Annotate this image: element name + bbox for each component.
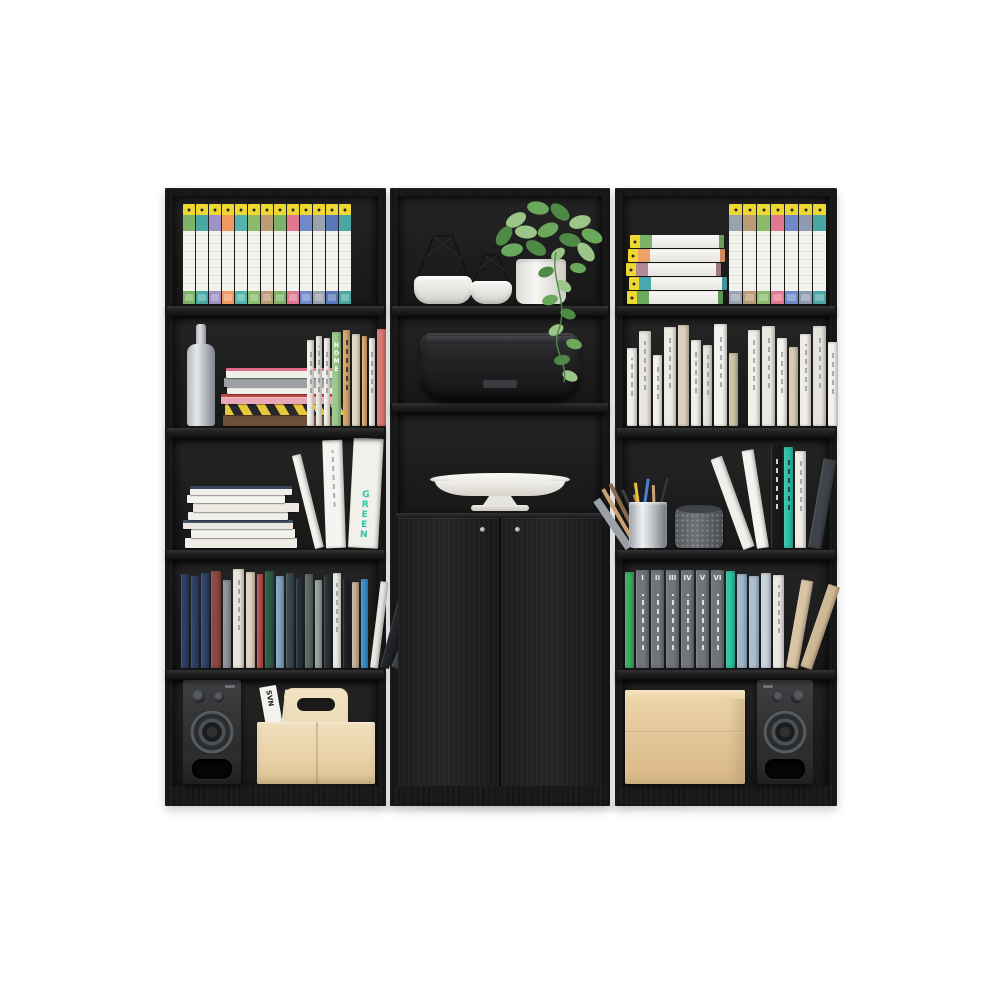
bowl-body [435,481,565,496]
book-spine [691,340,701,426]
spine-text-marks [753,340,755,390]
ring-binder [287,204,299,304]
shelf-board [392,306,608,316]
book-spine [286,573,294,668]
left-shelf-2: HOME [173,316,378,428]
book-stack [185,486,297,548]
shelf-board [167,428,384,438]
binder-color-band [287,215,299,231]
spine-text-marks [657,365,659,399]
book-spine [377,329,386,426]
ring-binder [813,204,826,304]
spine-text-marks [695,350,697,393]
binder-color-band [248,215,260,231]
binder-white-body [729,231,742,291]
book-spine [305,574,313,668]
cabinet [398,513,602,786]
spine-text-marks [800,461,802,511]
book-spine [246,572,255,668]
binder-bottom-label [743,291,756,304]
binder-color-band [261,215,273,231]
binder-bottom-label [287,291,299,304]
horizontal-book-stack [627,234,725,304]
shelf-board [392,403,608,413]
right-shelf-2 [623,316,829,428]
volume-numeral: V [696,574,709,582]
spine-text-marks [781,348,783,393]
stereo-speaker [183,680,241,784]
book-spine [678,325,689,426]
woofer [763,710,807,754]
binder-bottom-label [785,291,798,304]
horizontal-book [629,277,727,290]
binder-spine-top [729,204,742,215]
binder-white-body [183,231,195,291]
horizontal-book [630,235,724,248]
spine-text-marks [788,457,790,510]
right-shelf-1 [623,196,829,306]
book-spine [257,574,263,668]
middle-shelf-2 [398,316,602,403]
pencil-cup [629,480,667,548]
binder-white-body [300,231,312,291]
spine-text-marks [702,594,704,650]
spine-text-marks [669,337,671,388]
book-spine [211,571,221,668]
binder-bottom-label [183,291,195,304]
binder-bottom-label [209,291,221,304]
book-spine [748,330,760,426]
binder-color-band [813,215,826,231]
book-yellow-cap [626,263,636,276]
binder-bottom-label [799,291,812,304]
cabinet-door-left [398,518,499,786]
book-spine [316,336,322,426]
right-shelf-5 [623,680,829,786]
water-bottle [187,324,215,426]
left-shelf-1 [173,196,378,306]
book-spine: VI [711,570,724,668]
book-spine [813,326,826,426]
box-lid [625,690,745,699]
book-color-band [637,291,649,304]
binder-white-body [261,231,273,291]
binder-spine-top [222,204,234,215]
horizontal-book [628,249,725,262]
ring-binder [300,204,312,304]
binder-bottom-label [261,291,273,304]
book-white-body [650,249,720,262]
binder-white-body [248,231,260,291]
caddy-seam [316,722,318,784]
book-spine: II [651,570,664,668]
stacked-book [185,538,297,548]
shelf-board [167,550,384,560]
book-yellow-cap [629,277,639,290]
binder-white-body [222,231,234,291]
binder-white-body [326,231,338,291]
right-shelf-3 [623,438,829,550]
book-spine [773,575,784,668]
pedestal-bowl [430,473,570,511]
book-spine [795,451,806,548]
stacked-book [188,512,288,520]
binder-spine-top [326,204,338,215]
ring-binder [248,204,260,304]
binder-color-band [222,215,234,231]
book-spine [276,576,284,668]
book-spine [761,573,771,668]
volume-numeral: I [636,574,649,582]
book-color-band [638,249,650,262]
book-spine [625,572,634,668]
lantern-wire-dome [470,253,512,283]
book-spine [726,571,735,668]
spine-text-marks [310,350,312,393]
book-spine [627,348,637,426]
spine-text-marks [657,594,659,650]
binder-bottom-label [313,291,325,304]
middle-shelf-1 [398,196,602,306]
volume-numeral: II [651,574,664,582]
binder-bottom-label [222,291,234,304]
book-spine [201,573,209,668]
wire-lantern [414,234,472,304]
binder-color-band [785,215,798,231]
book-white-body [652,235,719,248]
stacked-book [187,495,285,503]
binder-bottom-label [300,291,312,304]
binder-bottom-label [274,291,286,304]
volume-numeral: IV [681,574,694,582]
wire-lantern [470,253,512,304]
binder-spine-top [339,204,351,215]
book-row: HOME [307,329,387,426]
bowl-foot [471,505,529,511]
ring-binder [261,204,273,304]
binder-bottom-label [196,291,208,304]
book-yellow-cap [630,235,640,248]
cardboard-box [625,690,745,784]
shelf-board [167,306,384,316]
door-knob-right [515,527,520,532]
binder-white-body [813,231,826,291]
binder-color-band [300,215,312,231]
spine-text-marks [805,344,807,391]
binder-white-body [287,231,299,291]
book-spine: I [636,570,649,668]
door-knob-left [480,527,485,532]
binder-bottom-label [771,291,784,304]
lantern-ceramic-base [414,276,472,304]
binder-color-band [235,215,247,231]
spine-text-marks [336,583,338,632]
product-photo-stage: HOMEGREENSVNIIIIIIIVVVI [0,0,1000,1000]
spine-text-marks [778,585,780,633]
ring-binder [183,204,195,304]
binder-spine-top [261,204,273,215]
book-spine [181,574,189,668]
book-spine [315,580,322,668]
spine-text-marks [318,346,320,392]
book-spine [352,334,360,426]
book-spine [714,324,727,426]
binder-white-body [743,231,756,291]
spine-text-marks [631,358,633,396]
book-spine [191,576,199,668]
spine-title: HOME [333,342,340,374]
bass-port [192,759,232,779]
bass-port [765,759,805,779]
spine-text-marks [346,340,348,390]
book-color-band [636,263,648,276]
binder-spine-top [757,204,770,215]
horizontal-book [627,291,723,304]
ring-binder [757,204,770,304]
middle-bookcase [390,188,610,806]
lantern-wire-dome [414,234,472,278]
binder-bottom-label [813,291,826,304]
bookcase-set: HOMEGREENSVNIIIIIIIVVVI [165,188,838,806]
stacked-book [183,520,293,529]
ring-binder [313,204,325,304]
ring-binder [235,204,247,304]
book-spine [664,327,676,426]
book-row: GREEN [315,438,379,548]
book-spine [771,445,782,548]
book-spine [737,574,747,668]
book-spine [296,578,303,668]
book-white-body [649,291,718,304]
binder-white-body [771,231,784,291]
right-shelf-4: IIIIIIIVVVI [623,560,829,670]
binder-spine-top [235,204,247,215]
book-spine [703,345,712,426]
book-spine [639,331,651,426]
ring-binder [785,204,798,304]
book-spine [729,353,738,426]
cabinet-door-right [501,518,602,786]
binder-spine-top [274,204,286,215]
book-spine [307,340,314,426]
book-white-body [651,277,722,290]
spine-text-marks [776,455,778,509]
book-spine [784,447,793,548]
spine-text-marks [332,450,336,507]
book-end-cap [719,235,724,248]
book-row [743,445,822,548]
stacked-book [190,486,292,495]
binder-white-body [274,231,286,291]
ring-binder [196,204,208,304]
binder-color-band [326,215,338,231]
binder-white-body [209,231,221,291]
binder-white-body [235,231,247,291]
book-spine [333,573,341,668]
binder-row [729,204,826,304]
binder-bottom-label [326,291,338,304]
ring-binder [729,204,742,304]
binder-spine-top [196,204,208,215]
ring-binder [743,204,756,304]
book-spine [653,355,662,426]
wooden-caddy: SVN [257,684,375,784]
stacked-book [193,503,299,512]
binder-spine-top [799,204,812,215]
spine-text-marks [371,348,373,393]
book-spine [777,338,787,426]
spine-text-marks [326,348,328,393]
binder-white-body [799,231,812,291]
left-shelf-4 [173,560,378,670]
spine-text-marks [720,334,722,387]
plant-pot [516,259,566,304]
binder-color-band [196,215,208,231]
binder-white-body [757,231,770,291]
binder-color-band [274,215,286,231]
binder-bottom-label [729,291,742,304]
right-bookcase: IIIIIIIVVVI [615,188,837,806]
volume-numeral: III [666,574,679,582]
book-spine [324,338,330,426]
spine-text-marks [642,594,644,650]
book-spine [322,440,346,549]
spine-text-marks [687,594,689,650]
binder-color-band [771,215,784,231]
volume-numeral: VI [711,574,724,582]
book-yellow-cap [627,291,637,304]
binder-color-band [339,215,351,231]
speaker-logo [763,685,773,688]
candle-top [677,505,721,513]
bread-bin-label [483,380,517,388]
binder-spine-top [183,204,195,215]
book-spine [362,336,367,426]
book-spine: III [666,570,679,668]
book-end-cap [720,249,725,262]
book-spine [789,347,798,426]
book-yellow-cap [628,249,638,262]
lantern-ceramic-base [470,281,512,304]
spine-text-marks [717,594,719,650]
book-spine [233,569,244,668]
spine-text-marks [238,579,240,630]
binder-color-band [209,215,221,231]
horizontal-book [626,263,721,276]
binder-color-band [313,215,325,231]
stacked-book [191,529,295,538]
book-spine [361,579,368,668]
book-row [181,569,400,668]
binder-white-body [196,231,208,291]
book-spine [749,576,759,668]
caddy-handle-hole [297,698,335,711]
binder-spine-top [287,204,299,215]
binder-spine-top [248,204,260,215]
book-row [627,324,839,426]
book-spine [265,571,274,668]
binder-color-band [729,215,742,231]
binder-color-band [757,215,770,231]
ring-binder [326,204,338,304]
binder-white-body [785,231,798,291]
binder-white-body [313,231,325,291]
binder-spine-top [313,204,325,215]
binder-bottom-label [339,291,351,304]
book-spine [352,582,359,668]
ring-binder [799,204,812,304]
binder-color-band [799,215,812,231]
binder-spine-top [300,204,312,215]
book-spine [828,342,838,426]
speaker-logo [225,685,235,688]
book-spine [762,326,775,426]
book-spine: IV [681,570,694,668]
book-spine: HOME [332,332,341,426]
stereo-speaker [757,680,813,784]
spine-title: GREEN [358,490,371,540]
book-spine [808,458,836,549]
tweeter [772,692,782,702]
floor-shadow [185,803,815,819]
book-spine: GREEN [348,437,384,548]
spine-text-marks [644,341,646,390]
book-color-band [640,235,652,248]
shelf-board [617,670,835,680]
ring-binder [771,204,784,304]
spine-text-marks [672,594,674,650]
book-end-cap [718,291,723,304]
left-bookcase: HOMEGREENSVN [165,188,386,806]
book-spine [343,578,350,668]
shelf-board [617,428,835,438]
pillar-candle [675,508,723,548]
magazine-title: SVN [264,690,275,707]
book-spine [324,575,331,668]
ring-binder [274,204,286,304]
bottle-body [187,344,215,426]
spine-text-marks [819,336,821,388]
book-end-cap [722,277,727,290]
ring-binder [339,204,351,304]
tweeter [214,692,224,702]
book-spine [223,580,231,668]
binder-bottom-label [248,291,260,304]
shelf-board [167,670,384,680]
spine-text-marks [707,355,709,395]
left-shelf-3: GREEN [173,438,378,550]
woofer [190,710,234,754]
spine-text-marks [768,336,770,388]
book-row: IIIIIIIVVVI [625,570,813,668]
binder-spine-top [813,204,826,215]
book-end-cap [716,263,721,276]
shelf-board [617,306,835,316]
tweeter [192,690,205,703]
binder-white-body [339,231,351,291]
book-spine: V [696,570,709,668]
binder-bottom-label [235,291,247,304]
binder-row [183,204,351,304]
binder-color-band [183,215,195,231]
binder-spine-top [209,204,221,215]
cup-body [629,502,667,548]
book-white-body [648,263,716,276]
binder-color-band [743,215,756,231]
binder-bottom-label [757,291,770,304]
binder-spine-top [785,204,798,215]
book-color-band [639,277,651,290]
